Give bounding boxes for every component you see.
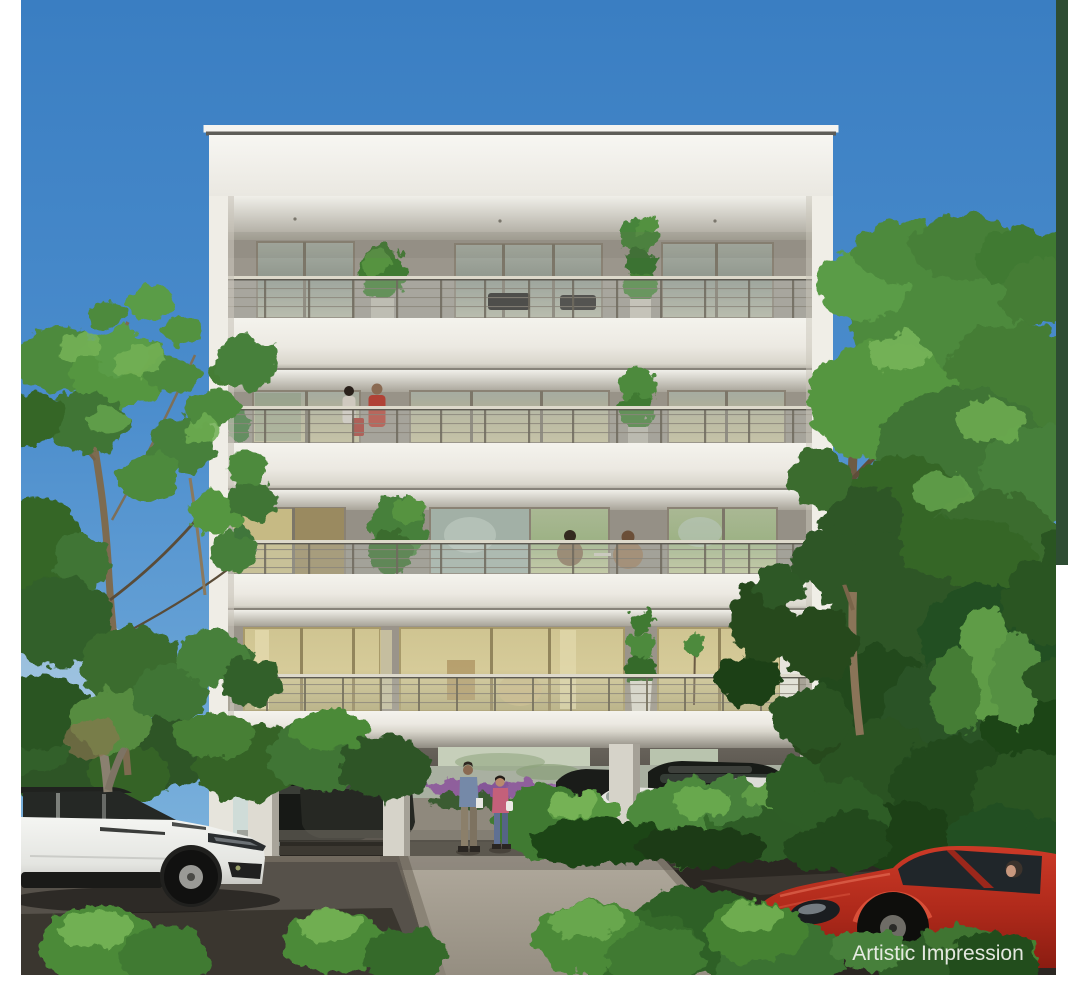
svg-text:Artistic Impression: Artistic Impression — [852, 942, 1024, 965]
